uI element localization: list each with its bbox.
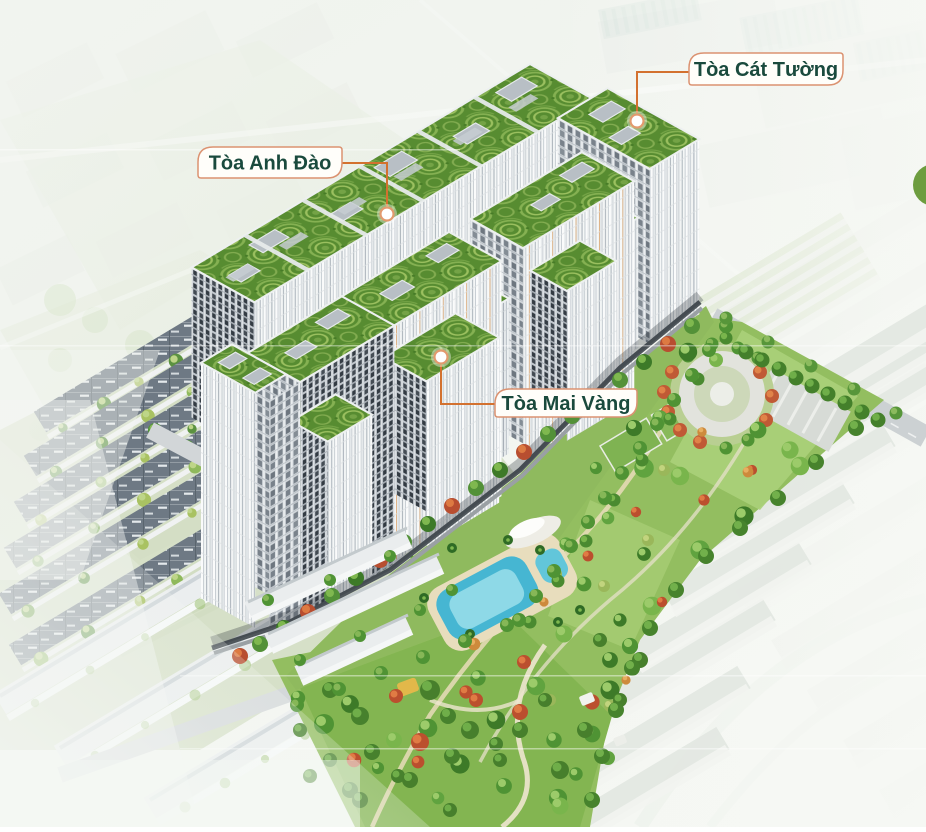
svg-text:Tòa Anh Đào: Tòa Anh Đào <box>209 153 332 175</box>
svg-text:Tòa Cát Tường: Tòa Cát Tường <box>694 59 838 81</box>
svg-text:Tòa Mai Vàng: Tòa Mai Vàng <box>502 393 631 415</box>
